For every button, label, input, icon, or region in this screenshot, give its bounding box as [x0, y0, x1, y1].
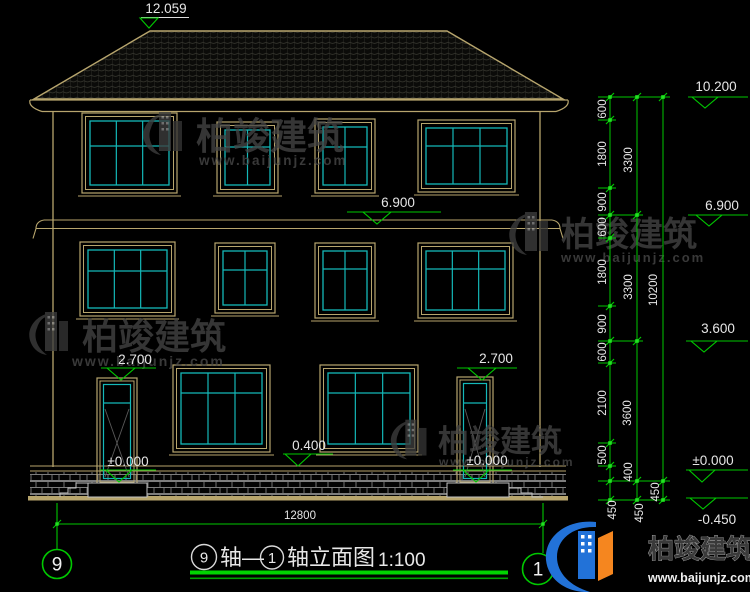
dimension-label: 450 — [607, 500, 619, 519]
cad-elevation-canvas: 柏竣建筑 www.baijunjz.com 柏竣建筑 www.baijunjz.… — [0, 0, 750, 592]
level-label: 10.200 — [695, 79, 736, 94]
level-label: 3.600 — [701, 321, 735, 336]
window — [414, 120, 519, 195]
dimension-label: 500 — [597, 445, 609, 464]
brand-orange-block — [598, 531, 613, 581]
level-label: ±0.000 — [466, 453, 507, 468]
level-marker: 10.200 — [688, 79, 748, 108]
axis-bubble-left-number: 9 — [52, 555, 63, 576]
level-marker: 6.900 — [688, 198, 748, 226]
level-label: 0.400 — [292, 438, 326, 453]
level-label: -0.450 — [698, 512, 736, 527]
dimension-label: 600 — [597, 99, 609, 118]
dimension-label: 3300 — [623, 274, 635, 300]
window — [311, 243, 379, 321]
level-marker: 12.059 — [140, 1, 189, 28]
dimension-label: 10200 — [648, 274, 660, 306]
level-marker: -0.450 — [686, 498, 748, 527]
level-marker: 0.400 — [283, 438, 333, 466]
hip-roof — [34, 31, 563, 99]
dimension-label: 2100 — [597, 390, 609, 416]
floor-band — [33, 220, 563, 239]
dimension-label: 1800 — [597, 141, 609, 167]
brand-logo: 柏竣建筑 www.baijunjz.com — [546, 522, 750, 592]
watermark-name: 柏竣建筑 — [196, 115, 344, 157]
title-axis-range: 轴— — [220, 545, 264, 570]
dimension-label: 3600 — [622, 400, 634, 426]
brand-name: 柏竣建筑 — [648, 534, 750, 564]
level-label: ±0.000 — [107, 454, 148, 469]
title-bubble-end: 1 — [268, 550, 276, 567]
watermark-name: 柏竣建筑 — [561, 215, 697, 254]
title-bubble-start: 9 — [200, 550, 208, 567]
level-marker: 2.700 — [457, 351, 517, 380]
level-label: ±0.000 — [692, 453, 733, 468]
dimension-label: 600 — [597, 217, 609, 236]
dimension-label: 400 — [623, 462, 635, 481]
dimension-chains: 6001800900600180090060021005004004503300… — [597, 93, 670, 523]
level-label: 2.700 — [479, 351, 513, 366]
window — [211, 243, 279, 316]
title-scale: 1:100 — [378, 550, 426, 571]
axis-bubble-left: 9 — [43, 550, 72, 579]
dimension-label: 450 — [650, 482, 662, 501]
title-text: 轴立面图 — [287, 545, 375, 570]
title-underline-thin — [190, 578, 508, 580]
right-door-platform — [447, 483, 509, 497]
drawing-title: 9 轴— 1 轴立面图 1:100 — [190, 545, 508, 580]
dimension-label: 450 — [634, 503, 646, 522]
doors — [97, 377, 493, 485]
level-marker: 3.600 — [686, 321, 748, 352]
window — [414, 243, 517, 321]
level-label: 2.700 — [118, 352, 152, 367]
dimension-label: 900 — [597, 314, 609, 333]
eave-cornice — [30, 100, 569, 112]
brand-url: www.baijunjz.com — [647, 571, 750, 585]
left-door-platform — [88, 483, 147, 497]
dimension-label: 900 — [597, 192, 609, 211]
window — [169, 365, 274, 455]
dimension-label: 1800 — [597, 259, 609, 285]
overall-width-label: 12800 — [284, 510, 316, 522]
axis-bubble-right-number: 1 — [533, 560, 544, 581]
level-label: 6.900 — [381, 195, 415, 210]
elevation-drawing: 柏竣建筑 www.baijunjz.com 柏竣建筑 www.baijunjz.… — [0, 0, 750, 592]
watermark-name: 柏竣建筑 — [82, 316, 226, 357]
level-label: 6.900 — [705, 198, 739, 213]
watermark-url: www.baijunjz.com — [560, 250, 705, 265]
level-label: 12.059 — [145, 1, 186, 16]
watermark-url: www.baijunjz.com — [198, 153, 348, 168]
dimension-label: 600 — [597, 342, 609, 361]
title-underline-thick — [190, 571, 508, 575]
window — [76, 242, 179, 319]
level-marker: ±0.000 — [686, 453, 748, 482]
dimension-label: 3300 — [623, 147, 635, 173]
